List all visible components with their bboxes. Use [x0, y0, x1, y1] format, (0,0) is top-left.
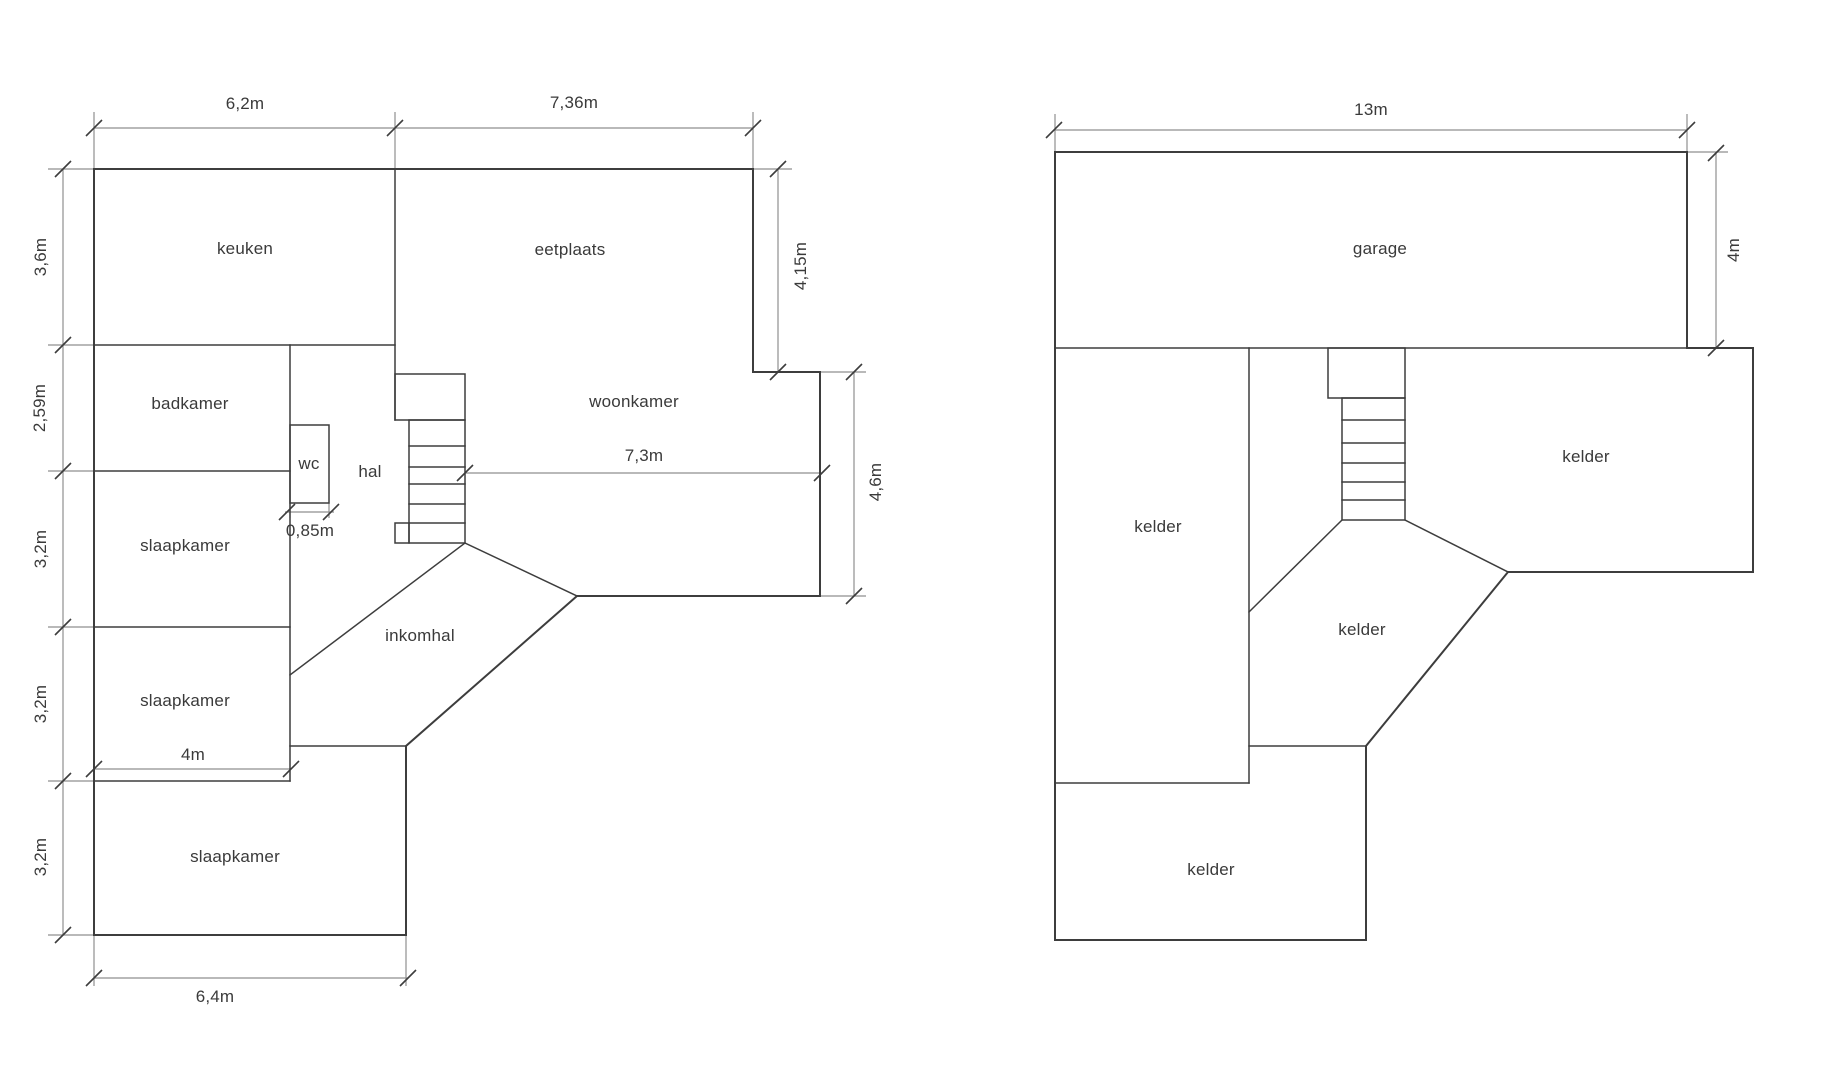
dim-label-width-wc: 0,85m [286, 521, 334, 541]
dim-label-width-woonkamer: 7,3m [625, 446, 664, 466]
room-label-kelder-right: kelder [1562, 447, 1610, 467]
stairs-steps [409, 446, 465, 523]
basement-stairs [1328, 348, 1405, 520]
room-label-keuken: keuken [217, 239, 273, 259]
room-label-inkomhal: inkomhal [385, 626, 455, 646]
dim-label-height-keuken: 3,6m [31, 238, 51, 277]
dim-label-width-garage: 13m [1354, 100, 1388, 120]
dim-label-height-badkamer: 2,59m [30, 384, 50, 432]
room-label-slaapkamer-3: slaapkamer [190, 847, 280, 867]
dim-label-width-eetplaats: 7,36m [550, 93, 598, 113]
room-label-woonkamer: woonkamer [589, 392, 679, 412]
room-label-eetplaats: eetplaats [535, 240, 606, 260]
stairs-treads [409, 420, 465, 543]
room-label-badkamer: badkamer [151, 394, 228, 414]
room-label-garage: garage [1353, 239, 1407, 259]
dim-label-height-slaapkamer-3: 3,2m [31, 838, 51, 877]
wall-inkomhal-left-diagonal [290, 543, 465, 675]
room-label-kelder-middle: kelder [1338, 620, 1386, 640]
basement-stairs-landing [1328, 348, 1405, 398]
basement-outer-wall [1055, 152, 1753, 940]
wall-inkomhal-right-diagonal [465, 543, 577, 596]
dim-label-height-eetplaats-right: 4,15m [791, 242, 811, 290]
wall-kelder-middle-right-diagonal [1405, 520, 1508, 572]
dim-label-height-slaapkamer-1: 3,2m [31, 530, 51, 569]
dim-label-width-keuken: 6,2m [226, 94, 265, 114]
basement-stairs-treads [1342, 398, 1405, 520]
dim-label-width-bottom: 6,4m [196, 987, 235, 1007]
room-label-kelder-left: kelder [1134, 517, 1182, 537]
room-label-kelder-bottom: kelder [1187, 860, 1235, 880]
floorplan-canvas: keuken eetplaats badkamer wc hal woonkam… [0, 0, 1827, 1080]
dim-label-height-woonkamer-right: 4,6m [866, 463, 886, 502]
wall-kelder-middle-left-diagonal [1249, 520, 1342, 612]
room-label-wc: wc [298, 454, 319, 474]
dim-label-height-slaapkamer-2: 3,2m [31, 685, 51, 724]
stairs-bottom-step [395, 523, 409, 543]
basement-stairs-steps [1342, 420, 1405, 500]
basement-walls [1055, 152, 1753, 940]
basement-extension-lines [1055, 114, 1728, 152]
stairs-landing [395, 374, 465, 420]
room-label-slaapkamer-2: slaapkamer [140, 691, 230, 711]
dim-label-width-slaapkamer-2: 4m [181, 745, 205, 765]
room-label-hal: hal [358, 462, 381, 482]
ground-floor-stairs [395, 374, 465, 543]
room-label-slaapkamer-1: slaapkamer [140, 536, 230, 556]
dim-label-height-garage: 4m [1724, 238, 1744, 262]
floorplan-drawing [0, 0, 1827, 1080]
